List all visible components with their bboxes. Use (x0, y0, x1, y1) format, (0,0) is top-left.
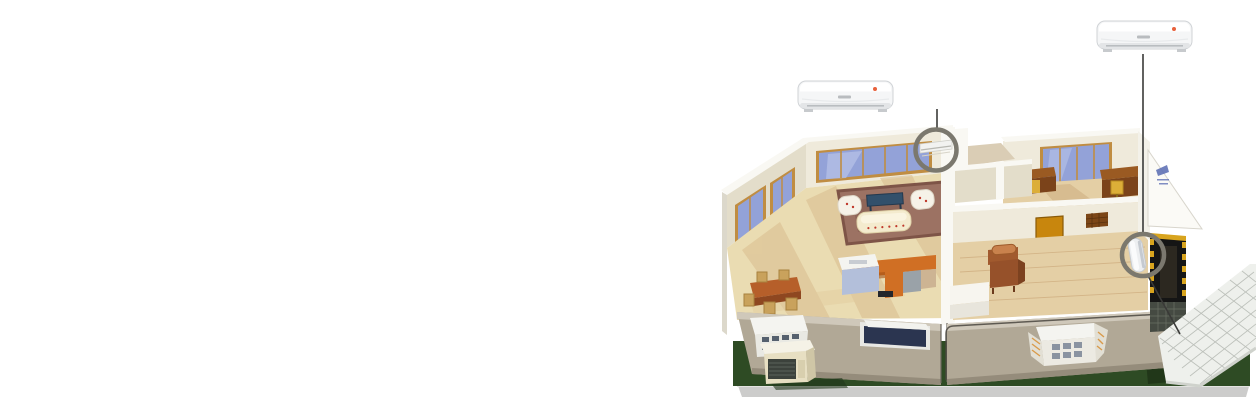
ac-foot-right (878, 109, 887, 112)
sink (849, 260, 867, 264)
wall-mat (1086, 212, 1108, 228)
house-ac-illustration (0, 0, 1256, 401)
recessed-window (860, 320, 930, 350)
ac-foot-left (1103, 49, 1112, 52)
entrance-door (1150, 233, 1186, 332)
kitchen-counter-gray (903, 270, 921, 293)
armchair-right (910, 189, 935, 211)
ac-indicator-dot (1172, 27, 1176, 31)
ac-brand-logo (838, 96, 851, 99)
ac-brand-logo (1137, 36, 1150, 39)
sofa (856, 209, 911, 234)
kitchen-island (838, 254, 879, 295)
ac-unit-left (798, 81, 893, 112)
ac-vent-slot (807, 105, 884, 107)
left-exterior-wall (722, 192, 727, 335)
ac-unit-right (1097, 21, 1192, 52)
ac-top-highlight (800, 83, 891, 92)
bed (950, 282, 989, 319)
ac-indicator-dot (873, 87, 877, 91)
gable-wall (1148, 150, 1202, 229)
illustration-canvas (0, 0, 1256, 401)
outdoor-unit-grille (768, 359, 796, 379)
ac-top-highlight (1099, 23, 1190, 32)
bay-window-right (1028, 323, 1108, 366)
right-house (946, 128, 1256, 386)
stove (878, 291, 893, 297)
ac-foot-right (1177, 49, 1186, 52)
ac-foot-left (804, 109, 813, 112)
armchair-left (837, 195, 862, 217)
kitchen-counter-wood (921, 269, 936, 289)
ac-vent-slot (1106, 45, 1183, 47)
